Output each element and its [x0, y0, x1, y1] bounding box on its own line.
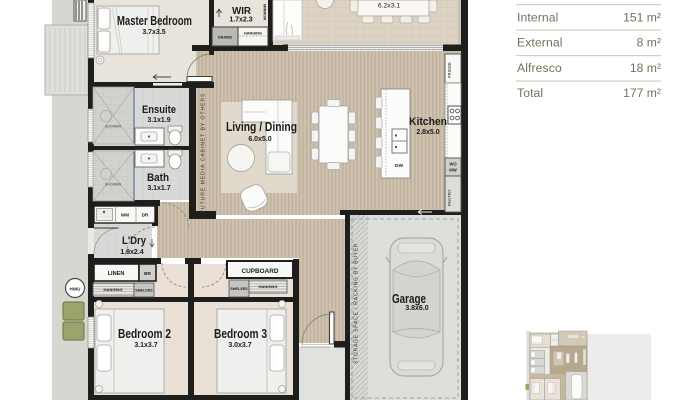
svg-text:LINEN: LINEN [108, 271, 125, 277]
svg-text:DR: DR [142, 213, 149, 218]
svg-text:Garage: Garage [392, 292, 426, 306]
svg-text:HANGING: HANGING [259, 284, 278, 289]
svg-text:3.1x3.7: 3.1x3.7 [134, 342, 157, 349]
svg-text:WM: WM [121, 213, 129, 218]
svg-text:Ensuite: Ensuite [142, 104, 176, 116]
svg-text:SHELVES: SHELVES [230, 287, 248, 291]
svg-text:FUTURE MEDIA CABINET BY OTHERS: FUTURE MEDIA CABINET BY OTHERS [201, 93, 207, 213]
svg-text:3.1x1.7: 3.1x1.7 [147, 185, 170, 192]
svg-text:SHOWER: SHOWER [105, 183, 122, 187]
svg-text:MIRROR: MIRROR [263, 4, 268, 20]
svg-text:SHOWER: SHOWER [105, 125, 122, 129]
svg-text:6.0x5.0: 6.0x5.0 [248, 136, 271, 143]
svg-text:Bedroom 3: Bedroom 3 [214, 327, 267, 341]
svg-text:FRIDGE: FRIDGE [447, 62, 452, 78]
svg-text:STORAGE SPACE / RACKING BY BUY: STORAGE SPACE / RACKING BY BUYER [354, 243, 360, 364]
svg-text:L'Dry: L'Dry [122, 235, 147, 247]
svg-text:2.8x5.0: 2.8x5.0 [416, 129, 439, 136]
svg-text:3.8x6.0: 3.8x6.0 [405, 305, 428, 312]
svg-text:CUPBOARD: CUPBOARD [242, 268, 279, 275]
svg-text:HANGING: HANGING [244, 32, 262, 36]
svg-text:3.7x3.5: 3.7x3.5 [142, 29, 165, 36]
svg-text:WO: WO [449, 162, 457, 167]
svg-text:Total: Total [517, 86, 543, 100]
svg-text:HANGING: HANGING [104, 287, 123, 292]
svg-text:WIR: WIR [232, 5, 251, 17]
svg-text:3.0x3.7: 3.0x3.7 [228, 342, 251, 349]
svg-text:Bath: Bath [147, 172, 169, 184]
svg-text:1.9x2.4: 1.9x2.4 [120, 249, 143, 256]
svg-text:Alfresco: Alfresco [517, 61, 562, 75]
svg-text:8 m²: 8 m² [637, 36, 661, 50]
svg-text:151 m²: 151 m² [623, 11, 661, 25]
svg-text:6.2x3.1: 6.2x3.1 [378, 3, 401, 10]
svg-text:MW: MW [449, 168, 456, 173]
svg-text:18 m²: 18 m² [630, 61, 661, 75]
svg-text:Living / Dining: Living / Dining [226, 120, 297, 134]
svg-text:Internal: Internal [517, 11, 558, 25]
svg-text:DW: DW [395, 163, 403, 169]
svg-text:Master Bedroom: Master Bedroom [117, 14, 192, 28]
svg-text:177 m²: 177 m² [623, 86, 661, 100]
svg-text:DRAWS: DRAWS [218, 36, 233, 40]
svg-text:3.1x1.9: 3.1x1.9 [147, 117, 170, 124]
svg-text:PANTRY: PANTRY [447, 189, 452, 206]
svg-text:BR: BR [144, 271, 151, 276]
svg-text:SHELVES: SHELVES [135, 289, 153, 293]
svg-text:1.7x2.3: 1.7x2.3 [229, 17, 252, 24]
svg-text:External: External [517, 36, 563, 50]
svg-text:Kitchen: Kitchen [409, 116, 447, 128]
svg-text:HWU: HWU [70, 287, 82, 292]
svg-text:Bedroom 2: Bedroom 2 [118, 327, 171, 341]
